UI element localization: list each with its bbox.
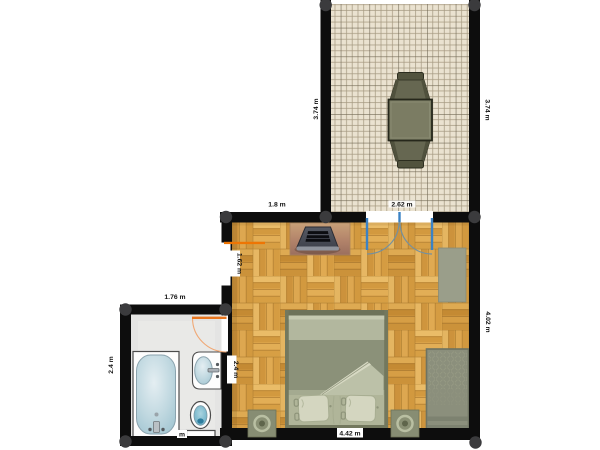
svg-text:2.62 m: 2.62 m xyxy=(391,202,412,209)
svg-text:3.74 m: 3.74 m xyxy=(484,99,491,120)
svg-text:4.42 m: 4.42 m xyxy=(339,431,360,438)
svg-text:2.4 m: 2.4 m xyxy=(108,356,115,373)
svg-text:1.62 m: 1.62 m xyxy=(235,253,242,274)
svg-text:1.76 m: 1.76 m xyxy=(164,294,185,301)
svg-text:3.74 m: 3.74 m xyxy=(313,98,320,119)
svg-text:1.8 m: 1.8 m xyxy=(268,202,285,209)
svg-text:m: m xyxy=(179,431,185,438)
svg-text:2.4 m: 2.4 m xyxy=(232,361,239,378)
svg-text:4.02 m: 4.02 m xyxy=(484,311,491,332)
